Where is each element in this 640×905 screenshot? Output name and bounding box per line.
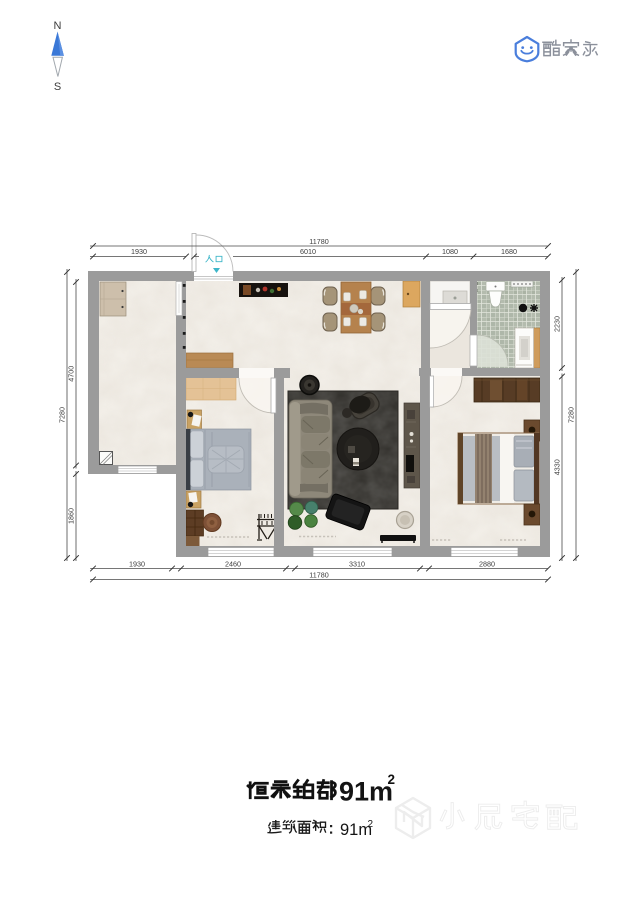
svg-text:91m: 91m [339,777,393,807]
svg-text:11780: 11780 [309,570,328,579]
svg-text:S: S [54,81,61,93]
svg-text:2460: 2460 [225,559,241,568]
svg-text:1080: 1080 [442,247,458,256]
svg-text:11780: 11780 [309,237,328,246]
svg-text:7280: 7280 [566,407,575,423]
svg-text:4700: 4700 [66,366,75,382]
svg-text:7280: 7280 [57,407,66,423]
svg-text:1680: 1680 [501,247,517,256]
svg-text:1930: 1930 [129,559,145,568]
svg-text:N: N [54,20,62,32]
svg-text:2880: 2880 [479,559,495,568]
svg-text:6010: 6010 [300,247,316,256]
svg-text:4330: 4330 [552,459,561,475]
svg-text:3310: 3310 [349,559,365,568]
svg-text:1930: 1930 [131,247,147,256]
svg-text:1860: 1860 [66,508,75,524]
svg-text:2: 2 [368,819,374,830]
svg-text:2230: 2230 [552,316,561,332]
svg-text:2: 2 [388,772,396,787]
